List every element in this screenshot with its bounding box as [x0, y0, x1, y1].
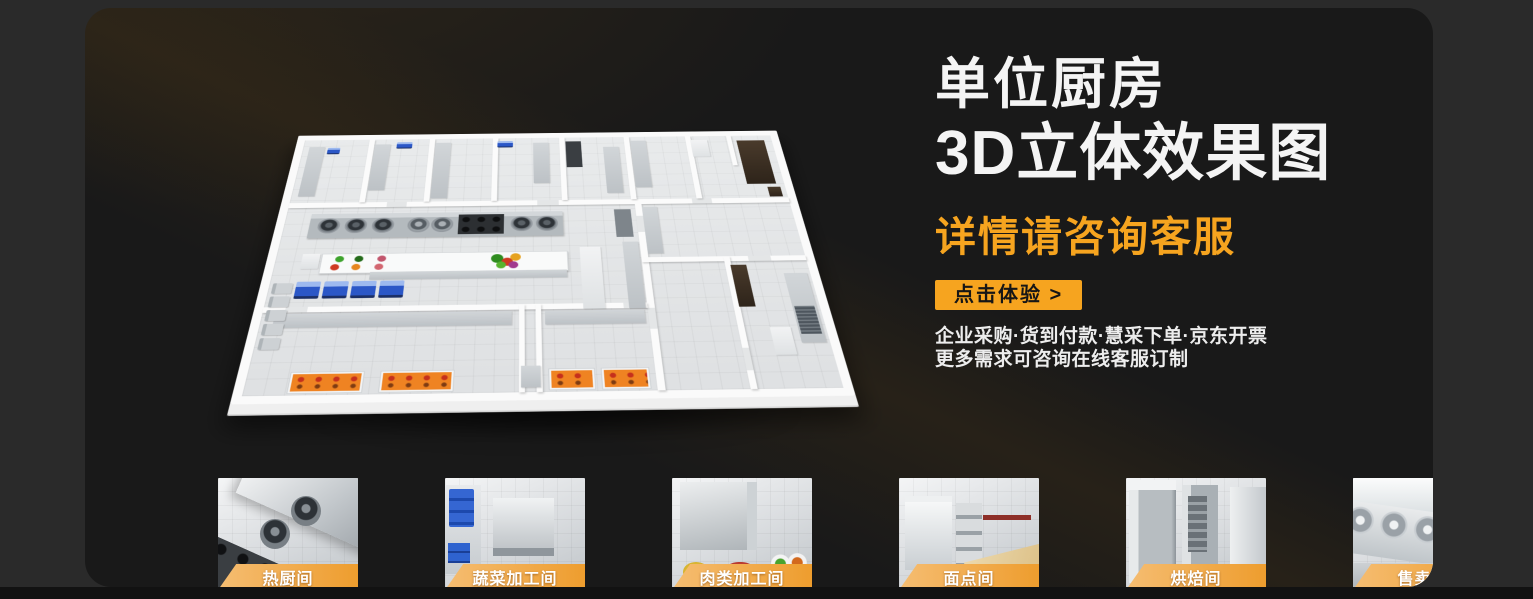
thumbnail-vegetable-processing[interactable]: 蔬菜加工间: [445, 478, 585, 587]
cta-button[interactable]: 点击体验 >: [935, 280, 1082, 310]
thumbnail-sales-room[interactable]: 售卖间: [1353, 478, 1433, 587]
thumbnail-strip: 热厨间 蔬菜加工间 肉类加工间 面点间 烘焙间 售卖间: [178, 462, 1433, 587]
kitchen-floorplan-3d: [229, 8, 869, 408]
hero-notes: 企业采购·货到付款·慧采下单·京东开票 更多需求可咨询在线客服订制: [935, 325, 1405, 371]
banner: 单位厨房 3D立体效果图 详情请咨询客服 点击体验 > 企业采购·货到付款·慧采…: [0, 0, 1533, 599]
thumbnail-meat-processing[interactable]: 肉类加工间: [672, 478, 812, 587]
note-line2: 更多需求可咨询在线客服订制: [935, 348, 1405, 371]
thumbnail-baking-room[interactable]: 烘焙间: [1126, 478, 1266, 587]
hero-banner-panel: 单位厨房 3D立体效果图 详情请咨询客服 点击体验 > 企业采购·货到付款·慧采…: [85, 8, 1433, 587]
hero-subtitle: 详情请咨询客服: [935, 214, 1405, 260]
hero-title-line2: 3D立体效果图: [935, 116, 1405, 192]
note-line1: 企业采购·货到付款·慧采下单·京东开票: [935, 325, 1405, 348]
thumbnail-label: 烘焙间: [1126, 564, 1266, 587]
thumbnail-label: 蔬菜加工间: [445, 564, 585, 587]
thumbnail-label: 肉类加工间: [672, 564, 812, 587]
hero-copy: 单位厨房 3D立体效果图 详情请咨询客服 点击体验 > 企业采购·货到付款·慧采…: [935, 52, 1405, 371]
thumbnail-pastry-room[interactable]: 面点间: [899, 478, 1039, 587]
thumbnail-hot-kitchen[interactable]: 热厨间: [218, 478, 358, 587]
kitchen-floorplan-floor: [230, 131, 856, 405]
hero-title-line1: 单位厨房: [935, 52, 1405, 116]
thumbnail-label: 热厨间: [218, 564, 358, 587]
thumbnail-label: 面点间: [899, 564, 1039, 587]
bottom-fade: [0, 587, 1533, 599]
